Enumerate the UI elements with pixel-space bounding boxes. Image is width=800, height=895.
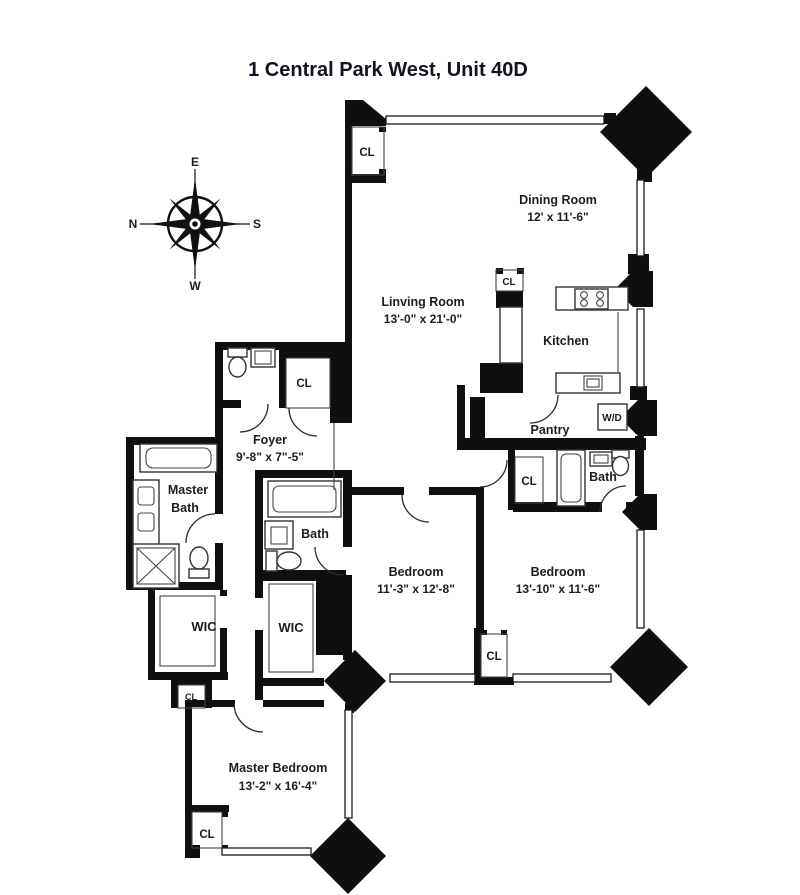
toilet-icon: [228, 348, 247, 357]
closet-label: CL: [185, 692, 197, 702]
bedroom-right-label: Bedroom: [531, 565, 586, 579]
bedroom-middle-label: Bedroom: [389, 565, 444, 579]
door-arc-bedroom-middle: [402, 495, 429, 522]
wic-left-label: WIC: [191, 619, 217, 634]
master-bedroom-dims: 13'-2" x 16'-4": [239, 779, 317, 793]
bedroom-middle-dims: 11'-3" x 12'-8": [377, 582, 455, 596]
door-arc-foyer-closet: [289, 408, 317, 436]
kitchen-label: Kitchen: [543, 334, 589, 348]
door-arc-bath-right: [600, 486, 626, 512]
closet-label: CL: [502, 277, 515, 288]
door-arc-master-bath: [186, 514, 215, 543]
compass-rose-icon: E N S W: [129, 155, 261, 293]
page-title: 1 Central Park West, Unit 40D: [248, 59, 528, 81]
closet-label: CL: [359, 147, 374, 159]
sink-icon: [265, 521, 293, 549]
floor-plan-svg: 1 Central Park West, Unit 40D E N S W: [0, 0, 800, 895]
right-bath-label: Bath: [589, 470, 617, 484]
toilet-icon: [266, 551, 277, 571]
door-arc-master-bedroom: [234, 703, 263, 732]
compass-east-label: E: [191, 155, 199, 169]
pantry-label: Pantry: [531, 423, 570, 437]
toilet-icon: [229, 357, 246, 377]
living-room-label: Linving Room: [381, 295, 464, 309]
dining-room-dims: 12' x 11'-6": [527, 210, 588, 224]
compass-south-label: S: [253, 217, 261, 231]
sink-icon: [590, 452, 612, 466]
compass-west-label: W: [189, 279, 201, 293]
toilet-icon: [189, 569, 209, 578]
duct-shaft: [500, 307, 522, 363]
stove-icon: [575, 289, 608, 309]
toilet-icon: [190, 547, 208, 569]
closet-label: CL: [199, 829, 214, 841]
toilet-icon: [277, 552, 301, 570]
closet-label: CL: [521, 476, 536, 488]
master-bedroom-label: Master Bedroom: [229, 761, 328, 775]
master-bath-label-line2: Bath: [171, 501, 199, 515]
living-room-dims: 13'-0" x 21'-0": [384, 312, 462, 326]
bedroom-right-dims: 13'-10" x 11'-6": [516, 582, 600, 596]
foyer-dims: 9'-8" x 7"-5": [236, 450, 304, 464]
floor-plan-page: 1 Central Park West, Unit 40D E N S W: [0, 0, 800, 895]
wic-right-label: WIC: [278, 620, 304, 635]
master-bath-label-line1: Master: [168, 483, 208, 497]
door-arc-pantry: [530, 395, 558, 423]
closet-label: CL: [486, 651, 501, 663]
dining-room-label: Dining Room: [519, 193, 597, 207]
middle-bath-label: Bath: [301, 527, 329, 541]
closet-label: CL: [296, 378, 311, 390]
washer-dryer-label: W/D: [602, 413, 621, 424]
compass-north-label: N: [129, 217, 138, 231]
foyer-label: Foyer: [253, 433, 287, 447]
door-arc-powder: [240, 404, 268, 432]
door-arc-bedroom-right: [480, 460, 507, 487]
